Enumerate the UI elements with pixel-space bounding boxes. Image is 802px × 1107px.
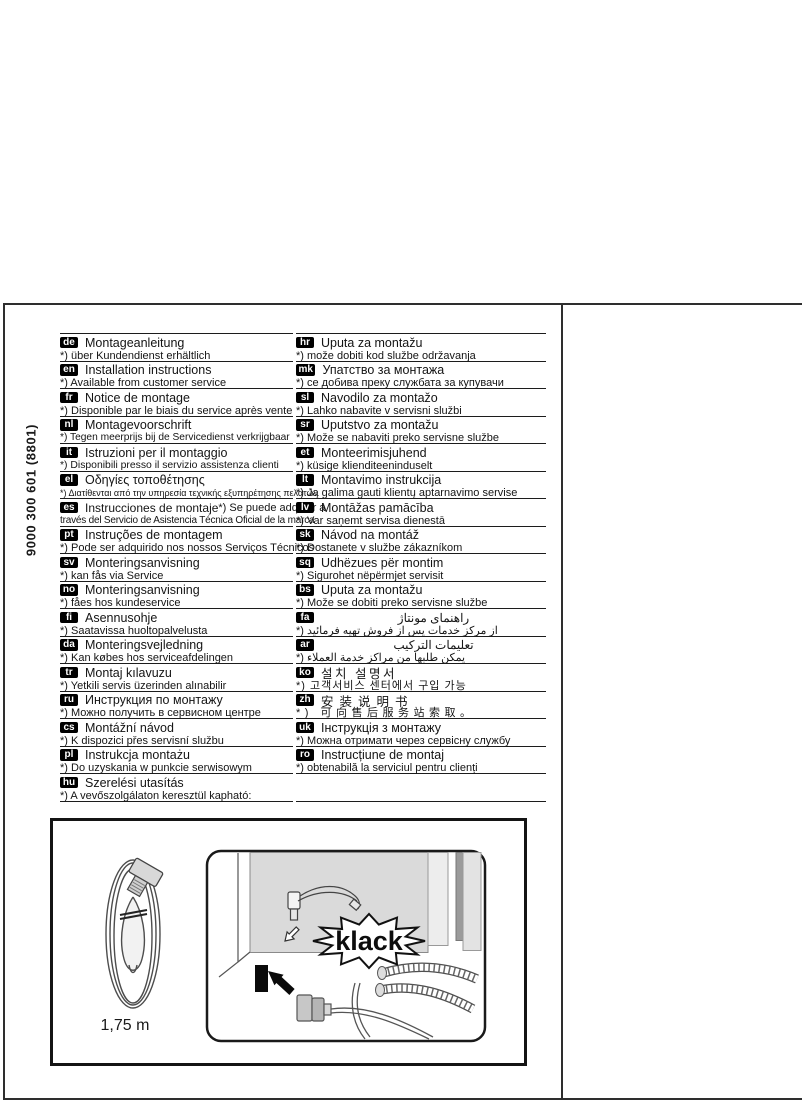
language-entry-ar: arتعليمات التركيب*) يمكن طلبها من مراكز … bbox=[296, 636, 546, 664]
language-entry-zh: zh安装说明书*) 可向售后服务站索取。 bbox=[296, 691, 546, 719]
language-entry-hu: huSzerelési utasítás*) A vevőszolgálaton… bbox=[60, 773, 293, 801]
language-title-bs: Uputa za montažu bbox=[321, 583, 422, 597]
language-entry-uk: ukІнструкція з монтажу*) Можна отримати … bbox=[296, 718, 546, 746]
language-title-ru: Инструкция по монтажу bbox=[85, 693, 223, 707]
appliance-rear-illustration: klack bbox=[205, 849, 487, 1043]
language-entry-fa: faراهنمای مونتاژ*) از مرکز خدمات پس از ف… bbox=[296, 608, 546, 636]
language-title-fr: Notice de montage bbox=[85, 391, 190, 405]
klack-text: klack bbox=[335, 926, 404, 956]
language-badge-et: et bbox=[296, 447, 314, 459]
language-entry-sk: skNávod na montáž*) Dostanete v službe z… bbox=[296, 526, 546, 554]
language-entry-hr: hrUputa za montažu*) može dobiti kod slu… bbox=[296, 333, 546, 361]
language-entry-en: enInstallation instructions*) Available … bbox=[60, 361, 293, 389]
language-entry-pt: ptInstruções de montagem*) Pode ser adqu… bbox=[60, 526, 293, 554]
language-badge-it: it bbox=[60, 447, 78, 459]
language-entry-el: elΟδηγίες τοποθέτησης*) Διατίθενται από … bbox=[60, 471, 293, 499]
language-title-no: Monteringsanvisning bbox=[85, 583, 200, 597]
language-list-left: deMontageanleitung*) über Kundendienst e… bbox=[60, 333, 293, 802]
document-frame: 9000 300 601 (8801) deMontageanleitung*)… bbox=[3, 303, 802, 1100]
language-title-el: Οδηγίες τοποθέτησης bbox=[85, 473, 205, 487]
language-badge-sq: sq bbox=[296, 557, 314, 569]
language-title-sv: Monteringsanvisning bbox=[85, 556, 200, 570]
language-entry-sq: sqUdhëzues për montim*) Sigurohet nëpërm… bbox=[296, 553, 546, 581]
language-badge-hr: hr bbox=[296, 337, 314, 349]
language-title-uk: Інструкція з монтажу bbox=[321, 721, 441, 735]
language-entry-cs: csMontážní návod*) K dispozici přes serv… bbox=[60, 718, 293, 746]
language-entry-et: etMonteerimisjuhend*) küsige klienditeen… bbox=[296, 443, 546, 471]
language-badge-nl: nl bbox=[60, 419, 78, 431]
language-badge-zh: zh bbox=[296, 694, 314, 706]
power-socket bbox=[255, 965, 268, 992]
language-badge-lv: lv bbox=[296, 502, 314, 514]
language-badge-uk: uk bbox=[296, 722, 314, 734]
language-badge-fi: fi bbox=[60, 612, 78, 624]
cable-length-label: 1,75 m bbox=[65, 1017, 185, 1035]
language-badge-sl: sl bbox=[296, 392, 314, 404]
language-entry-es: esInstrucciones de montaje*) Se puede ad… bbox=[60, 498, 293, 526]
language-entry-sl: slNavodilo za montažo*) Lahko nabavite v… bbox=[296, 388, 546, 416]
language-title-fa: راهنمای مونتاژ bbox=[321, 611, 546, 625]
language-badge-sk: sk bbox=[296, 529, 314, 541]
language-badge-no: no bbox=[60, 584, 78, 596]
language-title-hu: Szerelési utasítás bbox=[85, 776, 184, 790]
language-badge-pl: pl bbox=[60, 749, 78, 761]
language-entry-sv: svMonteringsanvisning*) kan fås via Serv… bbox=[60, 553, 293, 581]
language-badge-cs: cs bbox=[60, 722, 78, 734]
language-title-cs: Montážní návod bbox=[85, 721, 174, 735]
document-number-text: 9000 300 601 (8801) bbox=[24, 424, 39, 556]
language-entry-lt: ltMontavimo instrukcija*) Ją galima gaut… bbox=[296, 471, 546, 499]
language-entry-nl: nlMontagevoorschrift*) Tegen meerprijs b… bbox=[60, 416, 293, 444]
language-badge-da: da bbox=[60, 639, 78, 651]
language-entry-bs: bsUputa za montažu*) Može se dobiti prek… bbox=[296, 581, 546, 609]
language-title-nl: Montagevoorschrift bbox=[85, 418, 191, 432]
language-badge-ro: ro bbox=[296, 749, 314, 761]
language-entry-de: deMontageanleitung*) über Kundendienst e… bbox=[60, 333, 293, 361]
language-entry-fi: fiAsennusohje*) Saatavissa huoltopalvelu… bbox=[60, 608, 293, 636]
language-title-tr: Montaj kılavuzu bbox=[85, 666, 172, 680]
language-title-hr: Uputa za montažu bbox=[321, 336, 422, 350]
language-title-et: Monteerimisjuhend bbox=[321, 446, 427, 460]
language-badge-lt: lt bbox=[296, 474, 314, 486]
cord-plug bbox=[121, 858, 164, 901]
language-badge-fr: fr bbox=[60, 392, 78, 404]
language-badge-ru: ru bbox=[60, 694, 78, 706]
power-cord-illustration bbox=[85, 843, 185, 1021]
language-entry-ro: roInstrucțiune de montaj*) obtenabilă la… bbox=[296, 746, 546, 774]
language-note-hu: *) A vevőszolgálaton keresztül kapható: bbox=[60, 790, 293, 802]
language-title-de: Montageanleitung bbox=[85, 336, 184, 350]
language-entry-pl: plInstrukcja montażu*) Do uzyskania w pu… bbox=[60, 746, 293, 774]
language-title-fi: Asennusohje bbox=[85, 611, 157, 625]
language-entry-sr: srUputstvo za montažu*) Može se nabaviti… bbox=[296, 416, 546, 444]
language-badge-bs: bs bbox=[296, 584, 314, 596]
language-badge-pt: pt bbox=[60, 529, 78, 541]
language-entry-ru: ruИнструкция по монтажу*) Можно получить… bbox=[60, 691, 293, 719]
language-entry-no: noMonteringsanvisning*) fåes hos kundese… bbox=[60, 581, 293, 609]
language-badge-mk: mk bbox=[296, 364, 315, 376]
language-title-en: Installation instructions bbox=[85, 363, 211, 377]
language-title-es: Instrucciones de montaje bbox=[85, 501, 218, 515]
column-closing-rule bbox=[296, 773, 546, 801]
language-title-it: Istruzioni per il montaggio bbox=[85, 446, 227, 460]
language-title-sq: Udhëzues për montim bbox=[321, 556, 443, 570]
language-badge-sv: sv bbox=[60, 557, 78, 569]
language-badge-hu: hu bbox=[60, 777, 78, 789]
language-title-sl: Navodilo za montažo bbox=[321, 391, 438, 405]
language-entry-fr: frNotice de montage*) Disponible par le … bbox=[60, 388, 293, 416]
installation-figure-box: 1,75 m bbox=[50, 818, 527, 1066]
language-title-sr: Uputstvo za montažu bbox=[321, 418, 438, 432]
language-badge-en: en bbox=[60, 364, 78, 376]
language-title-lv: Montāžas pamācība bbox=[321, 501, 434, 515]
language-title-da: Monteringsvejledning bbox=[85, 638, 203, 652]
language-list-right: hrUputa za montažu*) može dobiti kod slu… bbox=[296, 333, 546, 802]
language-badge-el: el bbox=[60, 474, 78, 486]
language-badge-de: de bbox=[60, 337, 78, 349]
language-title-ar: تعليمات التركيب bbox=[321, 638, 546, 652]
language-title-mk: Упатство за монтажа bbox=[322, 363, 444, 377]
language-entry-tr: trMontaj kılavuzu*) Yetkili servis üzeri… bbox=[60, 663, 293, 691]
language-title-ro: Instrucțiune de montaj bbox=[321, 748, 444, 762]
language-title-pt: Instruções de montagem bbox=[85, 528, 223, 542]
language-entry-da: daMonteringsvejledning*) Kan købes hos s… bbox=[60, 636, 293, 664]
language-entry-it: itIstruzioni per il montaggio*) Disponib… bbox=[60, 443, 293, 471]
language-note-ro: *) obtenabilă la serviciul pentru clienț… bbox=[296, 762, 546, 774]
language-badge-ar: ar bbox=[296, 639, 314, 651]
language-title-sk: Návod na montáž bbox=[321, 528, 419, 542]
language-entry-mk: mkУпатство за монтажа*) се добива преку … bbox=[296, 361, 546, 389]
language-title-pl: Instrukcja montażu bbox=[85, 748, 190, 762]
column-divider bbox=[561, 305, 563, 1098]
language-entry-ko: ko설치 설명서*) 고객서비스 센터에서 구입 가능 bbox=[296, 663, 546, 691]
language-badge-sr: sr bbox=[296, 419, 314, 431]
language-badge-ko: ko bbox=[296, 667, 314, 679]
language-badge-fa: fa bbox=[296, 612, 314, 624]
language-badge-tr: tr bbox=[60, 667, 78, 679]
language-entry-lv: lvMontāžas pamācība*) Var saņemt servisa… bbox=[296, 498, 546, 526]
language-badge-es: es bbox=[60, 502, 78, 514]
language-title-lt: Montavimo instrukcija bbox=[321, 473, 441, 487]
